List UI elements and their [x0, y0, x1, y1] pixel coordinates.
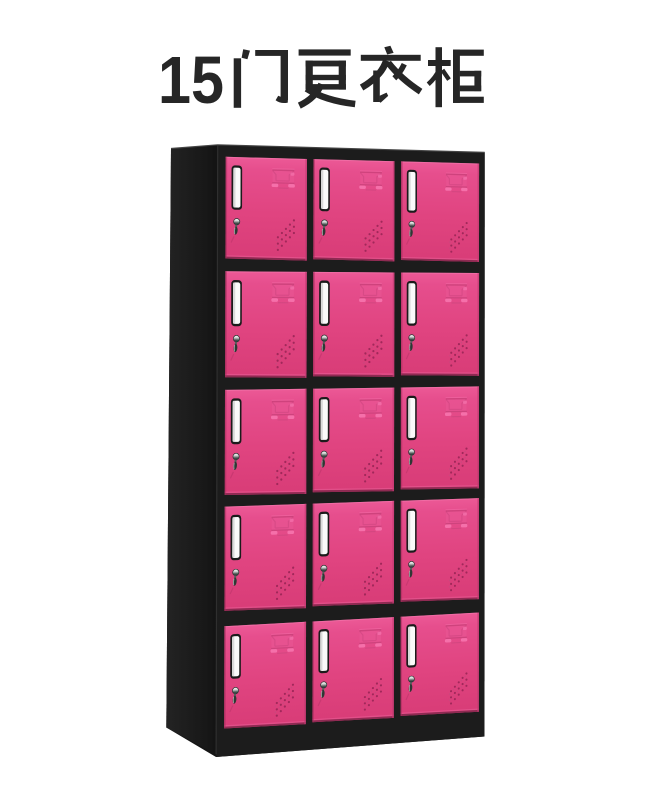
svg-text:15: 15 [158, 44, 224, 118]
